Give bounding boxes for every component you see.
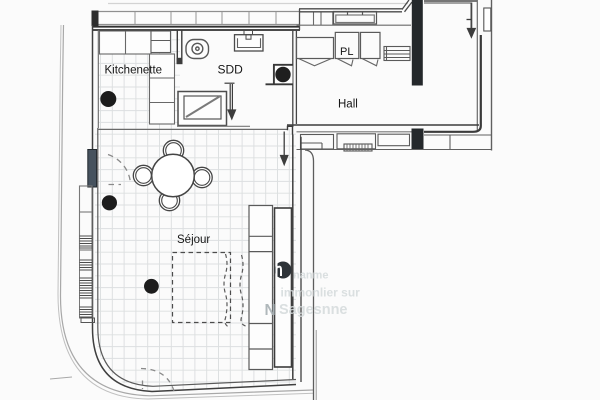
- svg-text:Hall: Hall: [338, 99, 358, 111]
- svg-text:Séjour: Séjour: [177, 234, 210, 246]
- svg-text:PL: PL: [340, 46, 353, 58]
- svg-text:immonlier sur: immonlier sur: [281, 286, 361, 300]
- svg-text:N: N: [265, 302, 276, 319]
- svg-text:Kitchenette: Kitchenette: [105, 65, 163, 77]
- svg-text:Sagesnne: Sagesnne: [279, 302, 348, 318]
- svg-text:nanme: nanme: [293, 270, 328, 282]
- svg-text:SDD: SDD: [218, 63, 244, 77]
